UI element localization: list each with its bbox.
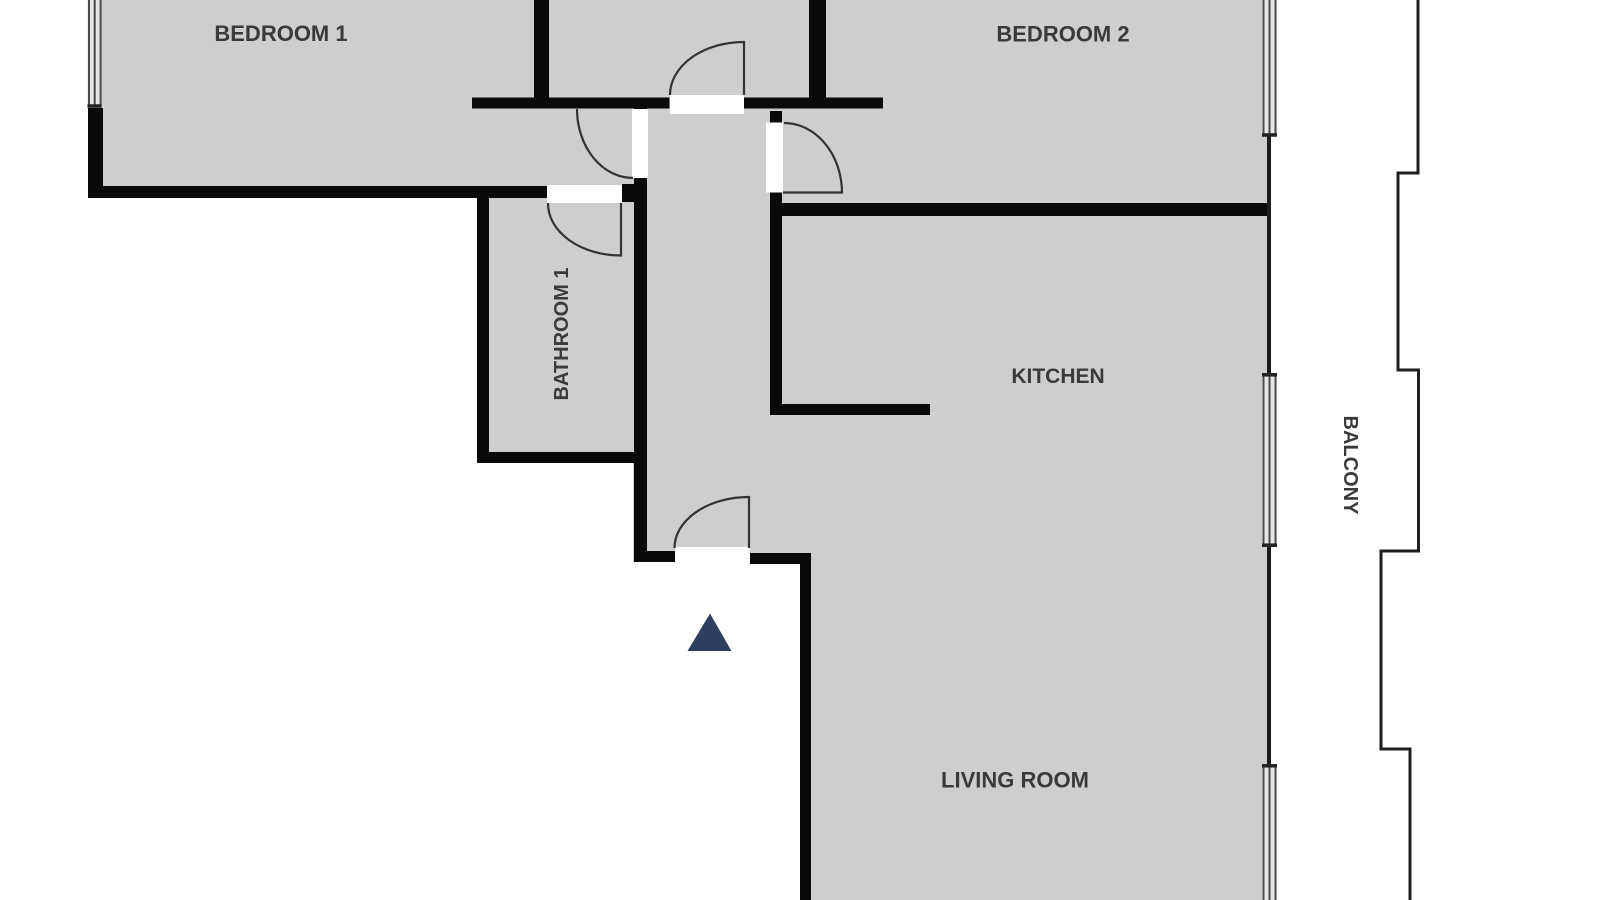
svg-text:KITCHEN: KITCHEN bbox=[1011, 365, 1104, 388]
svg-text:BATHROOM 1: BATHROOM 1 bbox=[551, 268, 573, 401]
svg-text:BEDROOM 2: BEDROOM 2 bbox=[996, 22, 1129, 47]
svg-text:LIVING ROOM: LIVING ROOM bbox=[941, 768, 1089, 793]
svg-text:BALCONY: BALCONY bbox=[1339, 416, 1361, 516]
svg-text:BEDROOM 1: BEDROOM 1 bbox=[214, 21, 347, 46]
